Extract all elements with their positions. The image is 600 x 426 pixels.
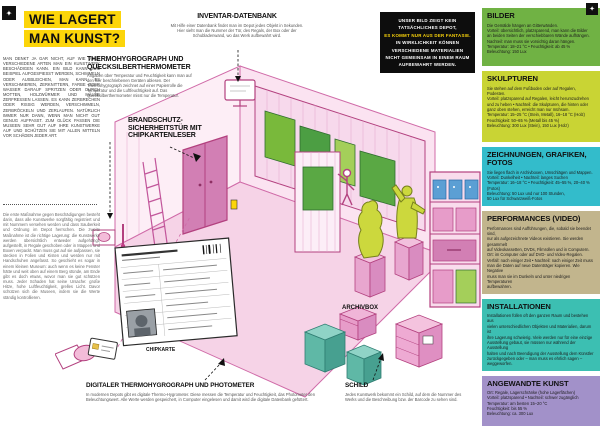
intro-paragraph-1: MAN DENKT JA GAR NICHT, AUF WIE VIELE VE… [3,56,100,139]
notice-line: UNSER BILD ZEIGT KEIN [384,17,471,24]
page-title-line: WIE LAGERT [24,11,121,28]
annotation-digitaler-thermohygrograph: DIGITALER THERMOHYGROGRAPH UND PHOTOMETE… [86,382,336,402]
caption-chipkarte: CHIPKARTE [146,347,175,353]
depot-room-illustration [55,52,485,404]
sidebar-section-heading: SKULPTUREN [487,75,595,83]
sculpture-venus [355,201,385,297]
notice-line: IN WIRKLICHKEIT KÖNNEN [384,39,471,46]
sidebar-section-zeichnungen: ZEICHNUNGEN, GRAFIKEN, FOTOS Sie liegen … [482,147,600,206]
page-corner-badge-right: ✦ [586,3,598,15]
annotation-heading: DIGITALER THERMOHYGROGRAPH UND PHOTOMETE… [86,382,336,390]
stored-painting [265,111,295,166]
sidebar-section-body: Performances sind Aufführungen, die, sob… [487,226,595,290]
sidebar-section-installationen: INSTALLATIONEN Installationen füllen oft… [482,299,600,371]
stored-painting [360,151,395,206]
annotation-heading: SCHILD [345,382,473,390]
crate-teal [305,324,345,372]
sidebar-section-angewandte-kunst: ANGEWANDTE KUNST Ort: Regale, Lagerschrä… [482,376,600,426]
sidebar-section-bilder: BILDER Die Gemälde hängen an Gitterwände… [482,8,600,66]
label-tag [423,336,433,344]
storage-box [456,208,476,231]
crate-pink [396,315,442,367]
storage-box [433,208,453,231]
sidebar-section-heading: ZEICHNUNGEN, GRAFIKEN, FOTOS [487,151,595,167]
annotation-schild: SCHILD Jedes Kunstwerk bekommt ein Schil… [345,382,473,402]
intro-paragraph-2: Die erste Maßnahme gegen Beschädigungen … [3,212,100,300]
notice-line: VERSCHIEDENE MATERIALIEN [384,47,471,54]
notice-line: NICHT GEMEINSAM IN EINEM RAUM [384,54,471,61]
annotation-body: Angaben über Temperatur und Feuchtigkeit… [87,73,199,98]
asterisk-icon: ✦ [6,9,13,18]
annotation-inventar-datenbank: INVENTAR-DATENBANK Mit Hilfe einer Daten… [168,13,306,38]
page-title: WIE LAGERT MAN KUNST? [24,11,125,49]
sidebar-section-body: Die Gemälde hängen an Gitterwänden. Vort… [487,23,595,55]
annotation-body: Jedes Kunstwerk bekommt ein Schild, auf … [345,392,473,402]
sidebar-section-heading: INSTALLATIONEN [487,303,595,311]
sidebar-section-body: Sie liegen flach in Archivboxen, Umschlä… [487,170,595,202]
infographic-page: ✦ ✦ WIE LAGERT MAN KUNST? MAN DENKT JA G… [0,0,600,426]
crate-teal [347,345,381,385]
annotation-brandschutztuer: BRANDSCHUTZ-SICHERHEITSTÜR MIT CHIPKARTE… [128,117,236,140]
storage-box [456,270,476,303]
storage-box [433,180,446,199]
sidebar-section-performances: PERFORMANCES (VIDEO) Performances sind A… [482,211,600,294]
sidebar-section-heading: BILDER [487,12,595,20]
sidebar-section-body: Sie stehen auf dem Fußboden oder auf Reg… [487,86,595,129]
sidebar: BILDER Die Gemälde hängen an Gitterwände… [482,8,600,426]
annotation-body: In modernen Depots gibt es digitale Ther… [86,392,336,402]
storage-box [465,180,478,199]
sidebar-section-heading: ANGEWANDTE KUNST [487,380,595,388]
annotation-thermohygrograph: THERMOHYGROGRAPH UND QUECKSILBERTHERMOME… [87,56,199,98]
notice-box: UNSER BILD ZEIGT KEIN TATSÄCHLICHES DEPO… [380,12,475,73]
pulled-rack-panel [295,152,340,252]
annotation-heading: INVENTAR-DATENBANK [168,13,306,21]
annotation-heading: THERMOHYGROGRAPH UND QUECKSILBERTHERMOME… [87,56,199,71]
notice-line: TATSÄCHLICHES DEPOT, [384,24,471,31]
page-title-line: MAN KUNST? [24,30,125,47]
card-reader-icon [231,200,237,209]
sidebar-section-skulpturen: SKULPTUREN Sie stehen auf dem Fußboden o… [482,71,600,142]
stored-painting [303,167,333,210]
sidebar-section-heading: PERFORMANCES (VIDEO) [487,215,595,223]
inventory-card [115,238,237,346]
notice-line: AUFBEWAHRT WERDEN. [384,61,471,68]
hand-with-chipcard [55,338,118,369]
storage-box [449,180,462,199]
storage-box [433,270,453,303]
annotation-body: Mit Hilfe einer Datenbank findet man im … [168,23,306,38]
storage-shelf [430,172,480,307]
dotted-divider [3,204,97,205]
sidebar-section-body: Installationen füllen oft den ganzen Rau… [487,313,595,366]
annotation-heading: BRANDSCHUTZ-SICHERHEITSTÜR MIT CHIPKARTE… [128,117,236,140]
asterisk-icon: ✦ [589,5,595,13]
notice-line: ES KOMMT NUR AUS DER FANTASIE. [384,32,471,39]
sidebar-section-body: Ort: Regale, Lagerschränke (hohe Lagerfl… [487,390,595,417]
page-corner-badge-left: ✦ [2,6,16,20]
caption-archivbox: ARCHIVBOX [342,305,378,311]
